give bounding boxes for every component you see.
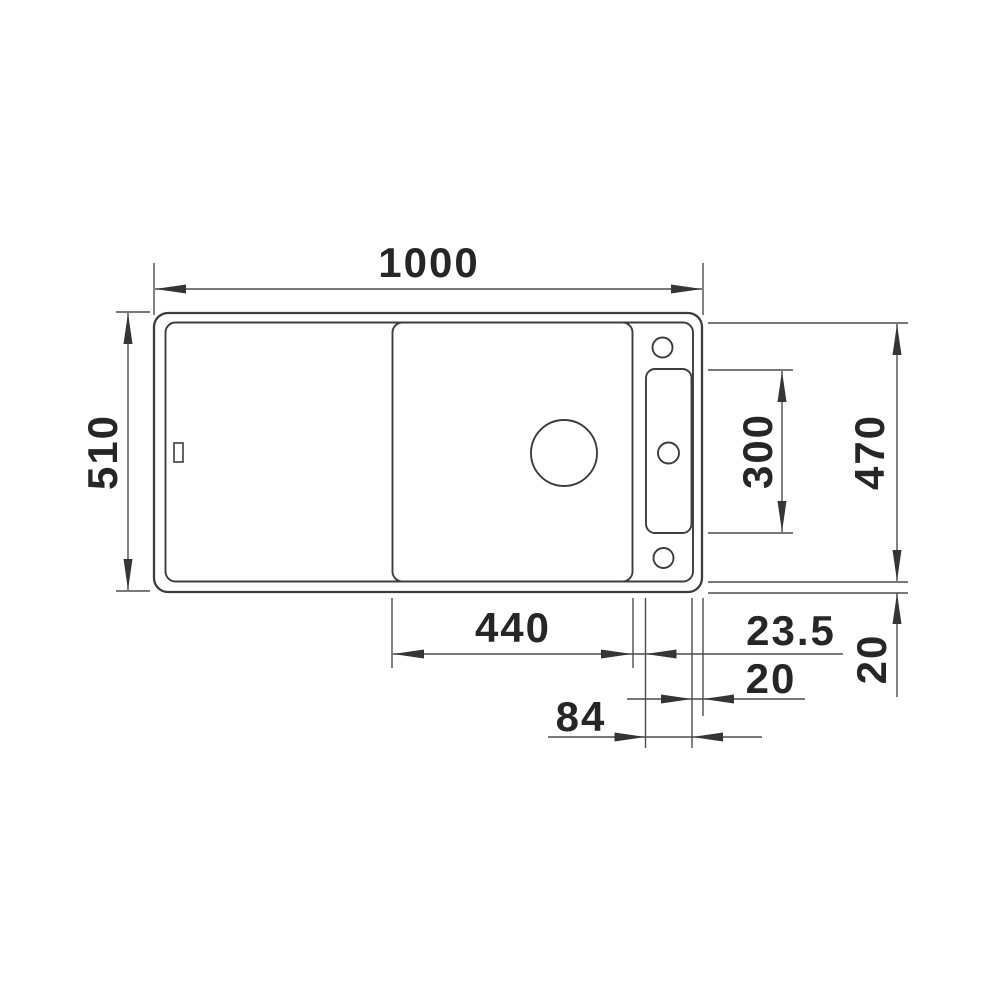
dim-label-right-inner-length: 470 bbox=[846, 414, 893, 490]
dimension-overall-depth: 510 bbox=[79, 312, 150, 591]
sink-inner-rim bbox=[166, 323, 694, 582]
arrowhead-right bbox=[601, 650, 632, 659]
dim-label-middle-section-width: 440 bbox=[475, 604, 551, 651]
arrowhead-outside-left bbox=[615, 733, 646, 742]
arrowhead-outside-right bbox=[692, 733, 723, 742]
sink-outer-edge bbox=[154, 313, 702, 592]
dimension-bottom-rim: 20 bbox=[848, 593, 902, 697]
arrowhead-outside-right bbox=[703, 695, 734, 704]
dimension-divider-to-slot: 23.5 bbox=[646, 607, 836, 659]
arrowhead-left bbox=[155, 285, 186, 294]
arrowhead-outside-left bbox=[661, 695, 692, 704]
dim-label-divider-to-slot: 23.5 bbox=[746, 607, 836, 654]
arrowhead-up bbox=[124, 313, 133, 344]
technical-drawing-canvas: 1000 510 470 20 300 bbox=[0, 0, 992, 992]
dim-label-overall-depth: 510 bbox=[79, 414, 126, 490]
arrowhead-up bbox=[893, 593, 902, 624]
arrowhead-down bbox=[893, 550, 902, 581]
dim-label-right-rim: 20 bbox=[746, 655, 797, 702]
dim-label-overall-width: 1000 bbox=[378, 239, 479, 286]
dimension-overall-width: 1000 bbox=[154, 239, 703, 315]
arrowhead-down bbox=[778, 501, 787, 532]
accessory-slot bbox=[646, 369, 692, 533]
tap-hole-bottom bbox=[654, 548, 674, 568]
arrowhead-left bbox=[393, 650, 424, 659]
arrowhead-up bbox=[893, 324, 902, 355]
dimension-slot-length: 300 bbox=[708, 370, 793, 533]
dim-label-slot-width: 84 bbox=[556, 693, 607, 740]
sink-dimension-drawing: 1000 510 470 20 300 bbox=[0, 0, 992, 992]
dimension-right-rim: 20 bbox=[627, 655, 805, 704]
arrowhead-up bbox=[778, 371, 787, 402]
dim-label-slot-length: 300 bbox=[734, 413, 781, 489]
overflow-slot bbox=[174, 443, 183, 462]
dim-label-bottom-rim: 20 bbox=[848, 634, 895, 685]
arrowhead-down bbox=[124, 559, 133, 590]
tap-hole-top bbox=[653, 338, 673, 358]
drain-hole bbox=[531, 420, 597, 486]
sink-body bbox=[154, 313, 702, 592]
arrowhead-outside bbox=[646, 650, 677, 659]
arrowhead-right bbox=[671, 285, 702, 294]
tap-hole-middle bbox=[658, 443, 679, 464]
